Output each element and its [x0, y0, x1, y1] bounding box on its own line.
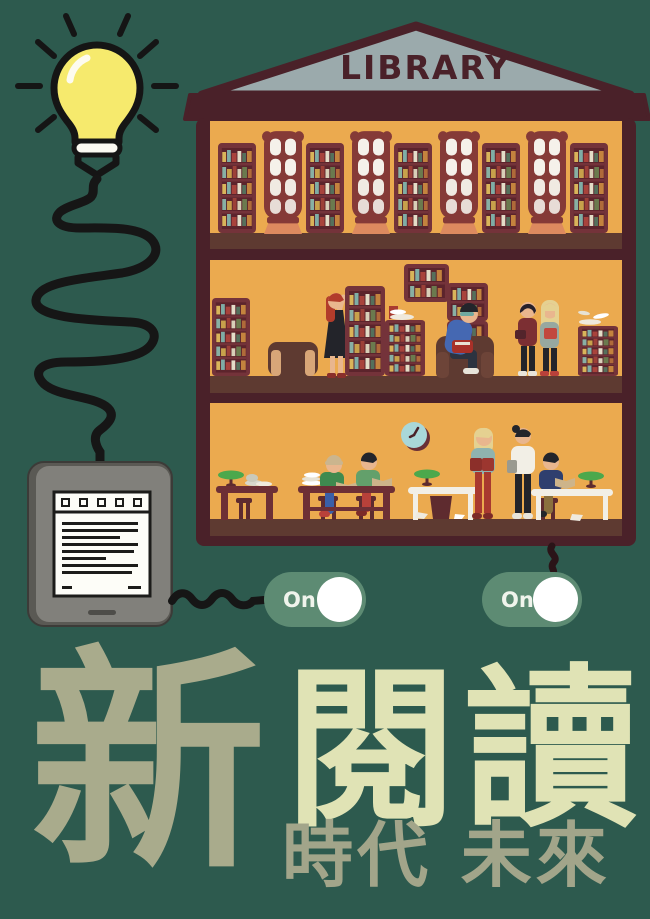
arched-window: [262, 131, 304, 234]
bookshelf: [345, 286, 385, 376]
bookshelf: [482, 143, 520, 233]
toggle-left-label: On: [283, 588, 316, 612]
bookshelf: [306, 143, 344, 233]
floor-3-study-hall: [210, 403, 622, 536]
library-sign: LIBRARY: [340, 51, 494, 84]
power-cable-ereader: [172, 593, 264, 605]
bookshelf: [394, 143, 432, 233]
bookshelf: [218, 143, 256, 233]
library-poster: LIBRARY On On 新 閱讀 時代 未來: [0, 0, 650, 919]
library-building: [185, 26, 649, 546]
armchair: [268, 342, 318, 376]
lightbulb-icon: [18, 16, 176, 175]
wastebasket: [430, 496, 452, 519]
bookshelf: [570, 143, 608, 233]
ereader-device: [28, 462, 172, 626]
floor-2-lounge: [210, 260, 622, 393]
title-characters-reading: 閱讀: [284, 664, 644, 838]
toggle-switch-left[interactable]: On: [264, 572, 366, 627]
toggle-right-label: On: [501, 588, 534, 612]
title-character-new: 新: [30, 646, 266, 882]
floor-1-gallery: [210, 121, 622, 249]
arched-window: [438, 131, 480, 234]
power-cable-building: [551, 546, 555, 574]
power-cable-bulb: [36, 179, 156, 462]
eave: [185, 95, 649, 119]
arched-window: [350, 131, 392, 234]
arched-window: [526, 131, 568, 234]
bookshelf: [578, 326, 618, 376]
bookshelf: [385, 320, 425, 376]
ereader-home-button[interactable]: [88, 610, 116, 615]
toggle-right-knob[interactable]: [533, 577, 578, 622]
wall-bookbox: [404, 264, 449, 302]
toggle-left-knob[interactable]: [317, 577, 362, 622]
bookshelf: [212, 298, 250, 376]
toggle-switch-right[interactable]: On: [482, 572, 582, 627]
subtitle-era-future: 時代 未來: [282, 820, 611, 891]
